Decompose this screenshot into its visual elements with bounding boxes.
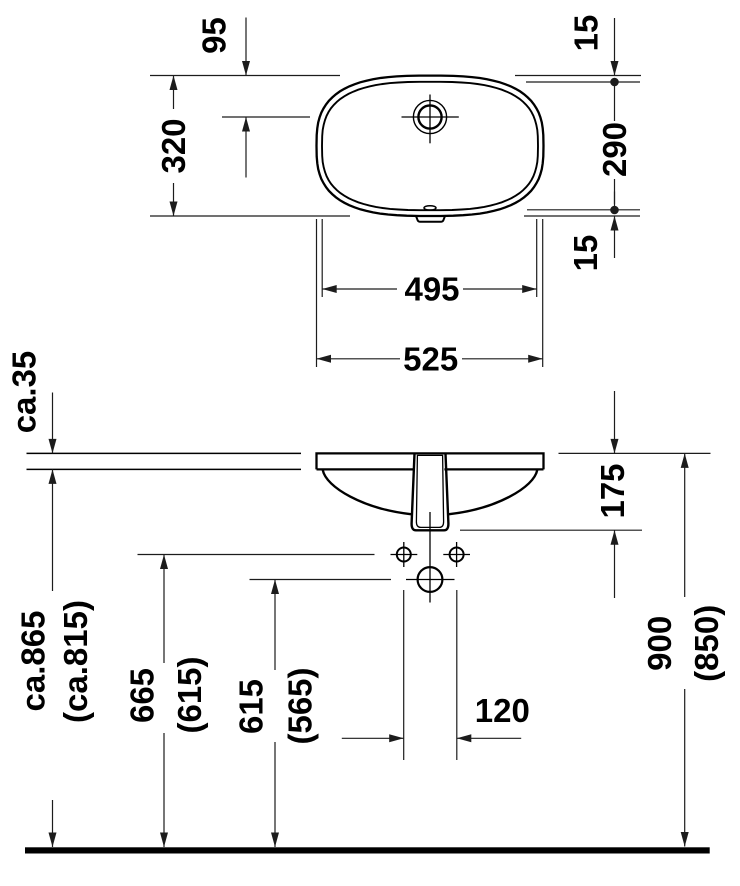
svg-text:290: 290 <box>596 122 633 177</box>
svg-text:175: 175 <box>594 463 631 518</box>
svg-text:665: 665 <box>124 668 161 723</box>
svg-text:ca.35: ca.35 <box>6 351 43 434</box>
svg-text:(ca.815): (ca.815) <box>57 600 94 723</box>
svg-text:ca.865: ca.865 <box>15 611 52 712</box>
svg-text:525: 525 <box>403 340 458 377</box>
svg-text:(615): (615) <box>171 656 208 733</box>
svg-text:15: 15 <box>568 15 605 52</box>
svg-text:900: 900 <box>641 616 678 671</box>
svg-text:(565): (565) <box>282 667 319 744</box>
svg-text:(850): (850) <box>688 605 725 682</box>
svg-text:320: 320 <box>155 118 192 173</box>
svg-text:615: 615 <box>233 679 270 734</box>
svg-text:15: 15 <box>567 235 604 272</box>
svg-text:120: 120 <box>475 692 530 729</box>
svg-text:95: 95 <box>196 17 233 54</box>
svg-text:495: 495 <box>404 271 459 308</box>
